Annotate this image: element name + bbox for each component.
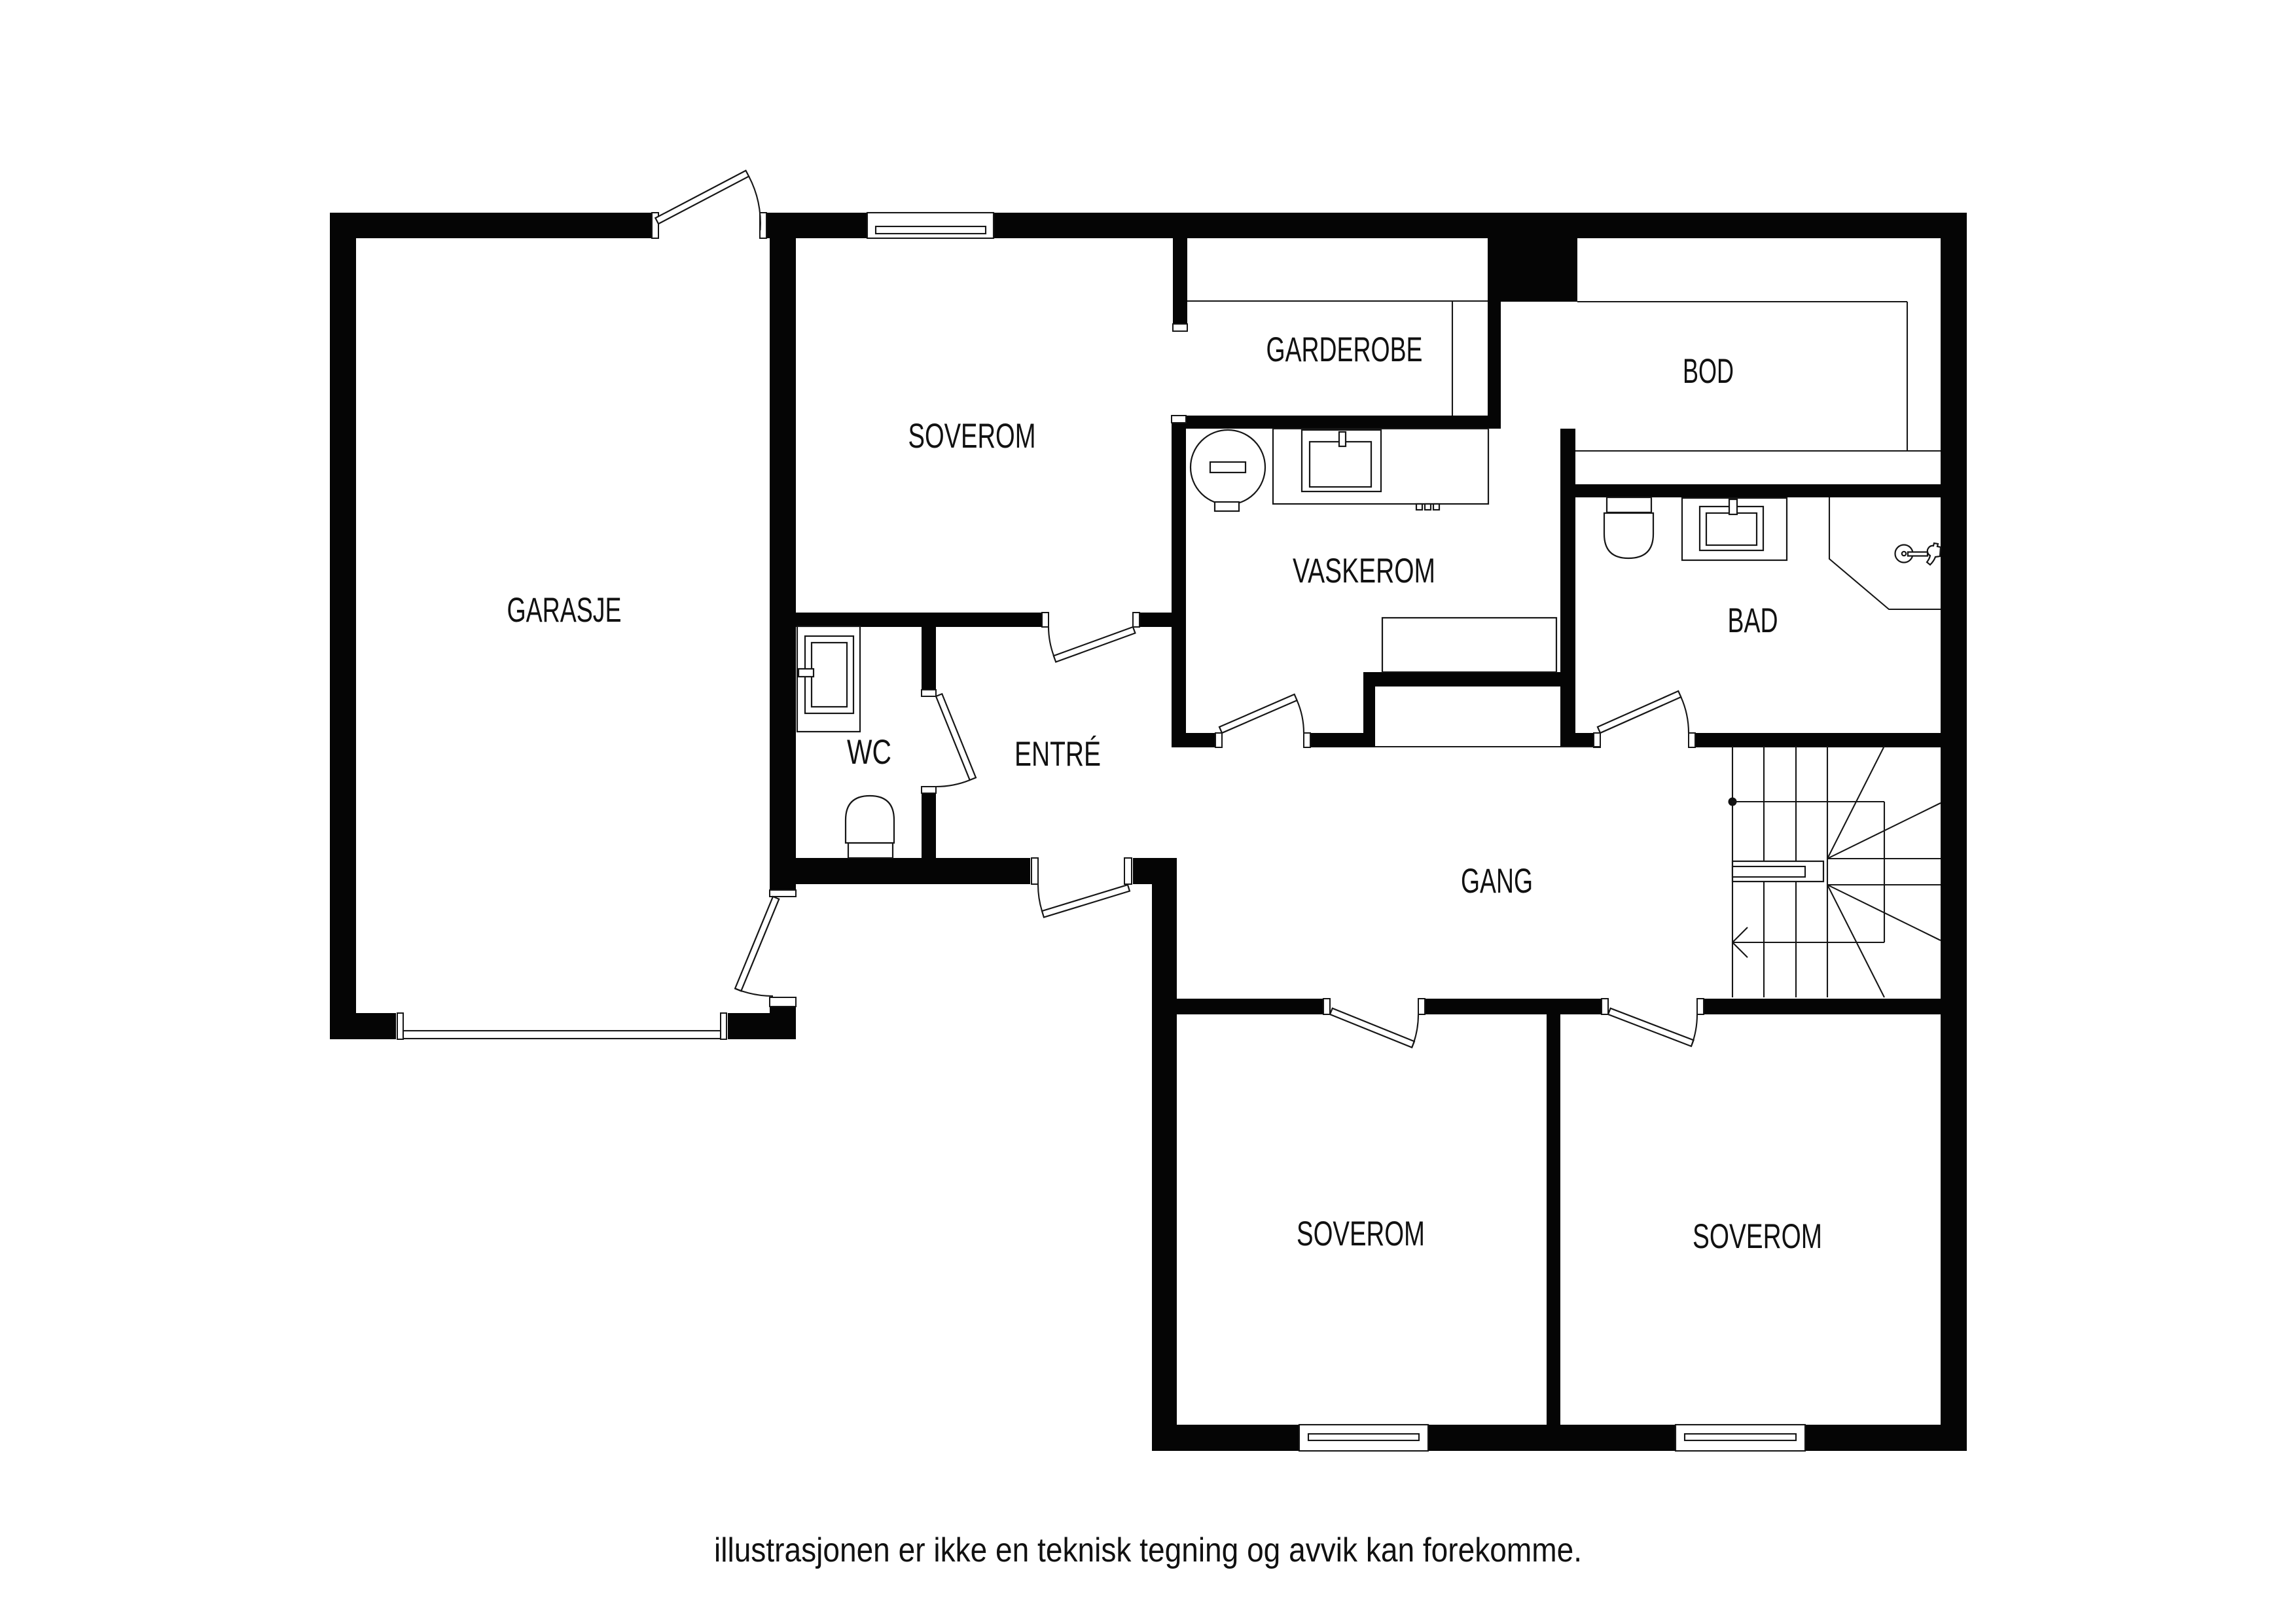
svg-text:BOD: BOD xyxy=(1683,352,1734,391)
svg-text:BAD: BAD xyxy=(1728,601,1778,640)
svg-text:VASKEROM: VASKEROM xyxy=(1293,552,1435,590)
svg-text:SOVEROM: SOVEROM xyxy=(908,417,1036,455)
svg-text:GANG: GANG xyxy=(1461,862,1533,901)
svg-text:WC: WC xyxy=(847,733,891,772)
svg-text:SOVEROM: SOVEROM xyxy=(1693,1217,1822,1256)
svg-text:SOVEROM: SOVEROM xyxy=(1297,1215,1425,1253)
svg-text:GARASJE: GARASJE xyxy=(507,591,622,630)
svg-text:ENTRÉ: ENTRÉ xyxy=(1014,735,1101,774)
svg-text:GARDEROBE: GARDEROBE xyxy=(1266,330,1423,369)
svg-text:illustrasjonen er ikke en tekn: illustrasjonen er ikke en teknisk tegnin… xyxy=(714,1531,1582,1569)
